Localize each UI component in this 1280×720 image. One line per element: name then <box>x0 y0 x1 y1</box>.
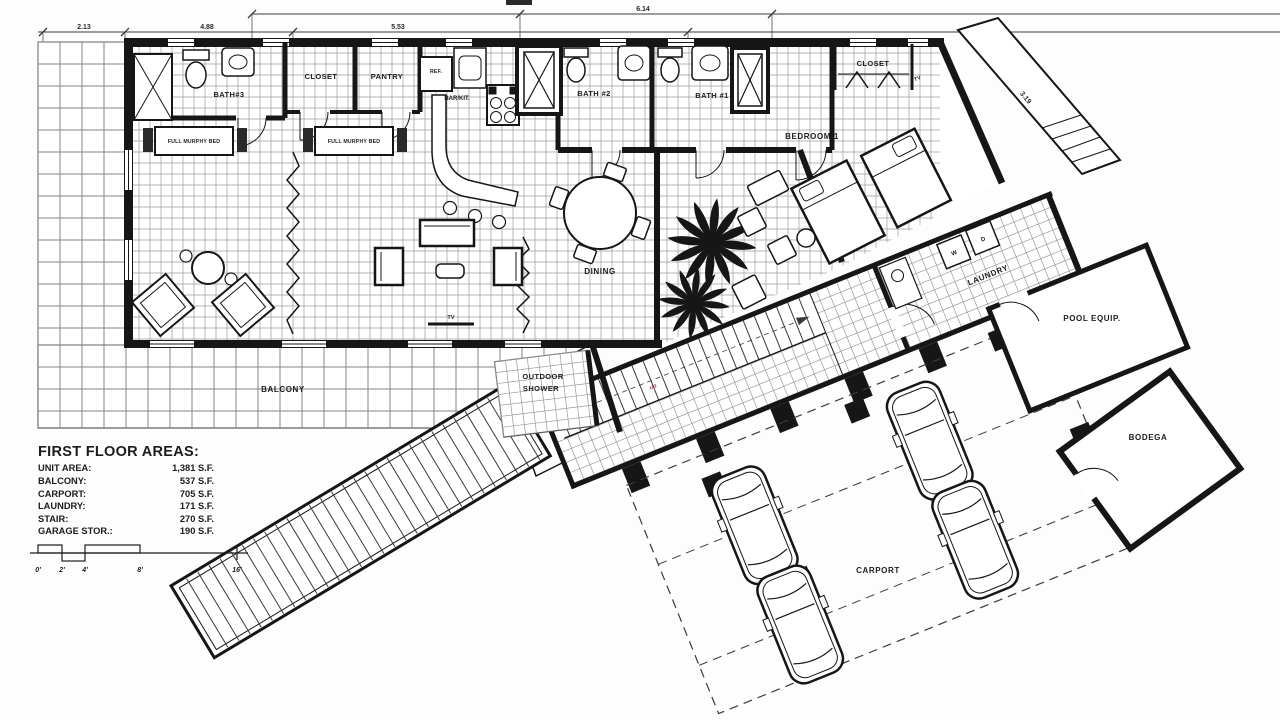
scale-tick-label: 16' <box>232 567 242 574</box>
scale-tick-label: 0' <box>35 567 41 574</box>
floor-plan-drawing: 2.13 4.88 5.53 6.14 3.19 <box>0 0 1280 720</box>
room-label-balcony: BALCONY <box>261 385 305 394</box>
dim-label-3: 5.53 <box>391 24 405 31</box>
room-label-bath1: BATH #1 <box>695 91 729 100</box>
room-label-bath2: BATH #2 <box>577 89 611 98</box>
room-label-closet2: CLOSET <box>857 59 890 68</box>
room-label-pool-equip: POOL EQUIP. <box>1063 314 1120 323</box>
areas-row-value: 270 S.F. <box>180 514 214 524</box>
areas-row-value: 1,381 S.F. <box>172 463 214 473</box>
room-label-barkit: BAR/KIT. <box>444 96 470 102</box>
areas-row-label: LAUNDRY: <box>38 501 86 511</box>
murphy-bed-label-1: FULL MURPHY BED <box>168 139 220 145</box>
room-label-bedroom1: BEDROOM 1 <box>785 132 839 141</box>
dim-label-2: 4.88 <box>200 24 214 31</box>
areas-row-label: STAIR: <box>38 514 68 524</box>
areas-row-label: GARAGE STOR.: <box>38 526 113 536</box>
areas-row-label: UNIT AREA: <box>38 463 91 473</box>
top-crop-artifact <box>506 0 532 5</box>
bath1-fixtures <box>658 46 728 82</box>
areas-row-value: 705 S.F. <box>180 489 214 499</box>
tv-living-label: TV <box>447 315 454 321</box>
room-label-ref: REF. <box>430 69 442 75</box>
room-label-closet1: CLOSET <box>305 72 338 81</box>
outdoor-shower-room <box>494 350 597 437</box>
dim-label-1: 2.13 <box>77 24 91 31</box>
scale-tick-label: 2' <box>58 567 65 574</box>
floor-plan-sheet: 2.13 4.88 5.53 6.14 3.19 <box>0 0 1280 720</box>
areas-row-value: 537 S.F. <box>180 476 214 486</box>
room-label-bodega: BODEGA <box>1129 433 1168 442</box>
areas-row-label: CARPORT: <box>38 489 86 499</box>
room-label-outdoor-shower-2: SHOWER <box>523 384 559 393</box>
scale-tick-label: 8' <box>137 567 143 574</box>
room-label-dining: DINING <box>584 267 616 276</box>
areas-row-value: 190 S.F. <box>180 526 214 536</box>
areas-row-label: BALCONY: <box>38 476 86 486</box>
areas-table-title: FIRST FLOOR AREAS: <box>38 444 199 460</box>
scale-tick-label: 4' <box>81 567 88 574</box>
room-label-pantry: PANTRY <box>371 72 403 81</box>
dim-label-4: 6.14 <box>636 6 650 13</box>
room-label-carport: CARPORT <box>856 566 900 575</box>
room-label-bath3: BATH#3 <box>213 90 244 99</box>
room-label-outdoor-shower-1: OUTDOOR <box>522 372 563 381</box>
murphy-bed-label-2: FULL MURPHY BED <box>328 139 380 145</box>
areas-row-value: 171 S.F. <box>180 501 214 511</box>
